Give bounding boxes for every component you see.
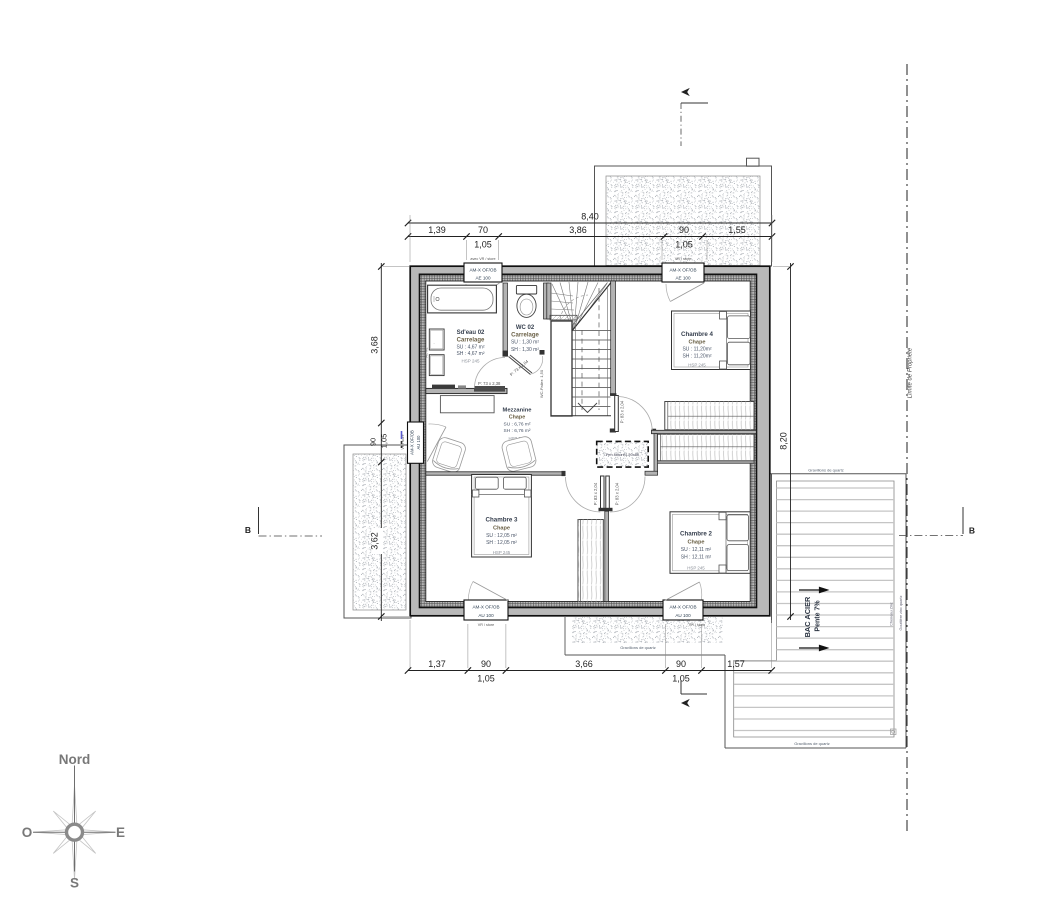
svg-text:AU 100: AU 100 [416,435,421,450]
svg-text:Limite de Propriété: Limite de Propriété [908,347,914,398]
svg-text:Mezzanine: Mezzanine [503,408,533,414]
svg-text:HSP 245: HSP 245 [687,566,705,571]
svg-text:Att. ML: Att. ML [424,347,428,357]
svg-text:90: 90 [679,225,689,235]
svg-text:1,55: 1,55 [728,225,746,235]
svg-text:AE 100: AE 100 [675,276,691,281]
svg-text:P: 83 x 2,04: P: 83 x 2,04 [593,482,598,505]
svg-text:WC 02: WC 02 [516,325,535,331]
svg-text:70: 70 [478,225,488,235]
svg-text:1,39: 1,39 [428,225,446,235]
svg-text:3,62: 3,62 [370,532,380,550]
svg-text:Nord: Nord [59,752,91,767]
svg-text:Gravillons de quartz: Gravillons de quartz [794,741,830,746]
svg-text:Carrelage: Carrelage [511,333,539,339]
svg-text:Chape: Chape [493,526,510,532]
svg-text:P: 83 x 2,04: P: 83 x 2,04 [620,400,625,423]
svg-text:Gravillons de quartz: Gravillons de quartz [620,645,656,650]
svg-text:SU : 11,20m²: SU : 11,20m² [682,347,711,353]
svg-text:P: 83 x 2,04: P: 83 x 2,04 [615,482,620,505]
svg-text:90: 90 [369,438,378,446]
svg-text:90: 90 [676,659,686,669]
svg-text:Chape: Chape [688,340,705,346]
svg-text:P: 73 x 2,38: P: 73 x 2,38 [478,381,501,386]
svg-text:VR / store: VR / store [478,623,494,627]
svg-text:3,66: 3,66 [575,659,593,669]
svg-text:Chambre 2: Chambre 2 [680,531,713,538]
svg-text:AM-X OF/OB: AM-X OF/OB [410,430,415,455]
svg-text:AU 100: AU 100 [675,613,691,618]
svg-text:HSP 245: HSP 245 [462,359,480,364]
svg-text:Carrelage: Carrelage [457,338,485,344]
svg-text:S: S [70,876,79,891]
svg-text:1,57: 1,57 [727,659,745,669]
svg-text:O: O [22,825,33,840]
svg-text:Pente 7%: Pente 7% [815,600,822,632]
svg-text:Chambre 4: Chambre 4 [681,331,714,338]
svg-text:E: E [116,825,125,840]
svg-text:Fen toiture | 20x80: Fen toiture | 20x80 [606,452,640,457]
svg-text:SH : 12,11 m²: SH : 12,11 m² [681,555,712,561]
svg-text:HSP 245: HSP 245 [493,550,511,555]
svg-text:·: · [433,341,434,346]
svg-text:AM-X OF/OB: AM-X OF/OB [472,605,499,610]
svg-text:8,20: 8,20 [779,432,789,450]
svg-text:Chape: Chape [509,415,525,421]
svg-text:VR / store: VR / store [689,623,705,627]
svg-text:VR / store: VR / store [675,257,691,261]
svg-text:8,40: 8,40 [581,212,599,222]
svg-text:3,68: 3,68 [370,336,380,354]
svg-text:90: 90 [481,659,491,669]
svg-text:1,37: 1,37 [428,659,446,669]
svg-text:SU : 12,05 m²: SU : 12,05 m² [486,533,517,539]
svg-text:SH : 12,05 m²: SH : 12,05 m² [486,540,517,546]
svg-text:avec VR / store: avec VR / store [470,257,495,261]
svg-text:SU : 12,11 m²: SU : 12,11 m² [681,547,712,553]
svg-text:BAC ACIER: BAC ACIER [803,596,812,637]
svg-text:AM-X OF/OB: AM-X OF/OB [669,268,696,273]
svg-text:WC-Palier: 1,50: WC-Palier: 1,50 [539,369,544,398]
svg-text:3,86: 3,86 [569,225,587,235]
svg-text:SU : 6,76 m²: SU : 6,76 m² [504,422,531,428]
svg-text:Cheneau Zinc: Cheneau Zinc [890,602,894,626]
svg-text:SU : 4,67 m²: SU : 4,67 m² [456,345,484,351]
svg-text:SH : 1,30 m²: SH : 1,30 m² [511,347,539,353]
svg-text:Chambre 3: Chambre 3 [486,517,519,524]
svg-text:1,05: 1,05 [474,240,492,250]
svg-text:Sd'eau 02: Sd'eau 02 [457,330,485,336]
svg-text:Gouttière zinc quartz: Gouttière zinc quartz [899,595,903,630]
svg-text:B: B [245,525,251,535]
svg-text:HSP 245: HSP 245 [688,363,706,368]
svg-text:1,05: 1,05 [675,240,693,250]
svg-text:SH : 11,20m²: SH : 11,20m² [682,354,711,360]
svg-text:Gravillons de quartz: Gravillons de quartz [808,468,844,473]
svg-text:B: B [969,526,975,536]
svg-text:SU : 1,30 m²: SU : 1,30 m² [511,340,539,346]
svg-text:1,05: 1,05 [477,674,495,684]
svg-text:AM-X OF/OB: AM-X OF/OB [469,268,496,273]
svg-text:Chape: Chape [687,540,704,546]
svg-text:AM-X OF/OB: AM-X OF/OB [669,605,696,610]
svg-text:SH : 4,67 m²: SH : 4,67 m² [456,351,484,357]
svg-text:SH : 6,76 m²: SH : 6,76 m² [504,428,531,434]
svg-text:AU 100: AU 100 [478,613,494,618]
svg-text:AE 100: AE 100 [475,276,491,281]
svg-text:1,05: 1,05 [380,434,389,449]
